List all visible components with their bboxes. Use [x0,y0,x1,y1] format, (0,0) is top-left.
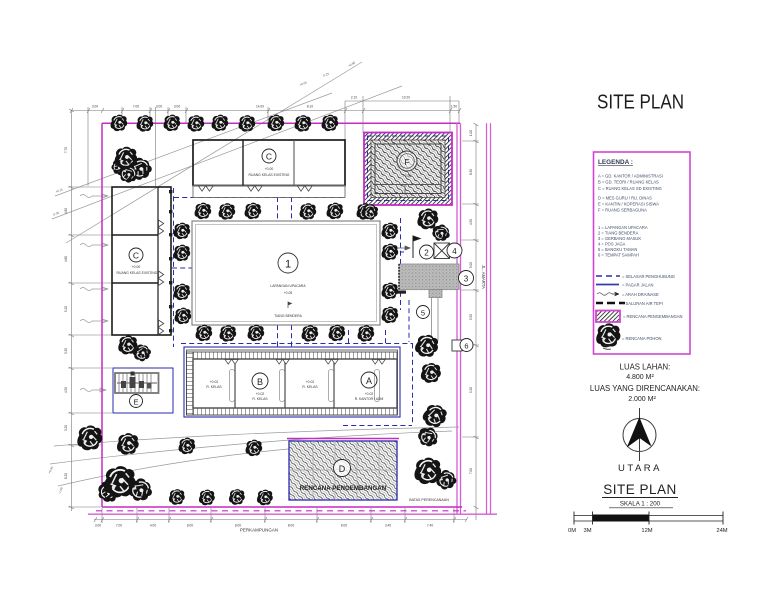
svg-text:5.00: 5.00 [469,262,473,268]
svg-text:= PAGAR JALAN: = PAGAR JALAN [622,283,653,288]
svg-text:8.00: 8.00 [341,524,347,528]
svg-text:7.00: 7.00 [133,105,139,109]
svg-text:4: 4 [452,247,457,256]
svg-text:= RENCANA POHON: = RENCANA POHON [622,336,662,341]
svg-text:RUANG KELAS EXISTING: RUANG KELAS EXISTING [117,271,158,275]
svg-text:3.00: 3.00 [92,105,98,109]
svg-text:PERKAMPUNGAN: PERKAMPUNGAN [240,528,278,533]
svg-text:R. KELAS: R. KELAS [252,397,268,401]
svg-text:+0.20: +0.20 [403,174,412,178]
svg-text:C = RUANG KELAS SD EXISTING: C = RUANG KELAS SD EXISTING [598,186,662,191]
svg-text:+0.02: +0.02 [256,392,265,396]
svg-text:UTARA: UTARA [618,463,662,474]
svg-text:24M: 24M [716,528,727,534]
svg-text:5 = BANGKU TAMAN: 5 = BANGKU TAMAN [598,247,637,252]
svg-text:6: 6 [464,342,468,351]
svg-text:5: 5 [421,309,425,318]
svg-text:B = GD. TEORI / RUANG KELAS: B = GD. TEORI / RUANG KELAS [598,180,659,185]
svg-text:3.20: 3.20 [64,425,68,431]
svg-text:8.00: 8.00 [288,524,294,528]
svg-text:5.50: 5.50 [469,314,473,320]
svg-text:= SELASAR PENGHUBUNG: = SELASAR PENGHUBUNG [622,274,675,279]
svg-text:D: D [339,464,346,474]
svg-text:D = MES GURU / RU. DINAS: D = MES GURU / RU. DINAS [598,196,652,201]
svg-text:7.00: 7.00 [116,524,122,528]
svg-text:3.40: 3.40 [385,524,391,528]
svg-text:LAPANGAN UPACARA: LAPANGAN UPACARA [270,284,306,288]
svg-text:BATAS PERENCANAAN: BATAS PERENCANAAN [409,498,449,502]
svg-text:4.50: 4.50 [64,387,68,393]
svg-text:= RENCANA PENGEMBANGAN: = RENCANA PENGEMBANGAN [623,314,683,319]
svg-text:RUANG KELAS EXISTING: RUANG KELAS EXISTING [249,173,290,177]
svg-text:R. KANTOR / ADM: R. KANTOR / ADM [355,397,384,401]
svg-text:6 = TEMPAT SAMPAH: 6 = TEMPAT SAMPAH [598,253,639,258]
svg-text:3.00: 3.00 [174,105,180,109]
svg-text:R. KELAS: R. KELAS [302,385,318,389]
svg-text:3.00: 3.00 [156,105,162,109]
svg-text:+0.02: +0.02 [365,392,374,396]
svg-text:4.00: 4.00 [150,524,156,528]
svg-text:3: 3 [464,275,469,284]
svg-text:E = KANTIN / KOPERASI SISWA: E = KANTIN / KOPERASI SISWA [598,202,659,207]
svg-text:F: F [404,157,409,167]
svg-text:7.70: 7.70 [64,147,68,153]
svg-text:B: B [257,377,263,387]
svg-text:2 = TIANG BENDERA: 2 = TIANG BENDERA [598,231,639,236]
svg-text:A = GD. KANTOR / ADMINISTRASI: A = GD. KANTOR / ADMINISTRASI [598,174,663,179]
svg-text:8.10: 8.10 [307,105,313,109]
svg-text:SITE PLAN: SITE PLAN [603,482,677,497]
svg-text:+0.02: +0.02 [306,380,315,384]
svg-text:= ARAH DRAINASE: = ARAH DRAINASE [622,292,659,297]
svg-text:6.20: 6.20 [64,473,68,479]
svg-text:1.50: 1.50 [451,105,457,109]
svg-text:4.80: 4.80 [64,208,68,214]
svg-text:8.00: 8.00 [187,524,193,528]
svg-text:10.20: 10.20 [402,96,410,100]
svg-text:F = RUANG SERBAGUNA: F = RUANG SERBAGUNA [598,208,647,213]
svg-text:2: 2 [424,249,429,258]
svg-text:1 = LAPANGAN UPACARA: 1 = LAPANGAN UPACARA [598,225,648,230]
svg-text:A: A [366,376,372,386]
svg-text:JL. AMARTA: JL. AMARTA [481,265,486,289]
svg-text:3.30: 3.30 [64,348,68,354]
svg-text:R. KELAS: R. KELAS [206,385,222,389]
svg-text:4.80: 4.80 [64,256,68,262]
svg-text:4 = POS JAGA: 4 = POS JAGA [598,242,626,247]
svg-text:E: E [133,398,138,407]
svg-text:3.00: 3.00 [95,524,101,528]
svg-text:LUAS LAHAN:: LUAS LAHAN: [620,363,671,372]
svg-text:7.40: 7.40 [427,524,433,528]
svg-text:= SALURAN AIR TEPI: = SALURAN AIR TEPI [622,301,663,306]
svg-text:SITE PLAN: SITE PLAN [597,92,684,114]
svg-text:RENCANA PENGEMBANGAN: RENCANA PENGEMBANGAN [300,485,387,492]
svg-text:SKALA 1 : 200: SKALA 1 : 200 [620,501,661,508]
svg-text:7.00: 7.00 [469,468,473,474]
svg-text:C: C [133,251,139,261]
svg-text:8.30: 8.30 [469,169,473,175]
svg-text:C: C [266,152,272,162]
svg-text:0M: 0M [568,528,576,534]
svg-text:9.20: 9.20 [469,387,473,393]
svg-text:+0.00: +0.00 [132,265,141,269]
svg-text:3 = GERBANG MASUK: 3 = GERBANG MASUK [598,236,641,241]
svg-text:+0.02: +0.02 [210,380,219,384]
svg-text:2.10: 2.10 [351,96,357,100]
svg-text:3M: 3M [583,528,591,534]
svg-text:2.000 M²: 2.000 M² [628,396,656,403]
svg-text:4.800 M²: 4.800 M² [626,374,654,381]
svg-text:+0.00: +0.00 [265,167,274,171]
svg-text:LEGENDA :: LEGENDA : [598,159,633,166]
svg-text:14.00: 14.00 [256,105,264,109]
svg-text:5.20: 5.20 [64,306,68,312]
svg-text:1: 1 [285,259,291,271]
svg-text:12M: 12M [641,528,652,534]
svg-text:4.50: 4.50 [469,219,473,225]
svg-text:LUAS YANG DIRENCANAKAN:: LUAS YANG DIRENCANAKAN: [590,384,700,393]
svg-text:TIANG BENDERA: TIANG BENDERA [274,314,302,318]
svg-text:+0.05: +0.05 [284,291,293,295]
svg-text:1.00: 1.00 [469,130,473,136]
